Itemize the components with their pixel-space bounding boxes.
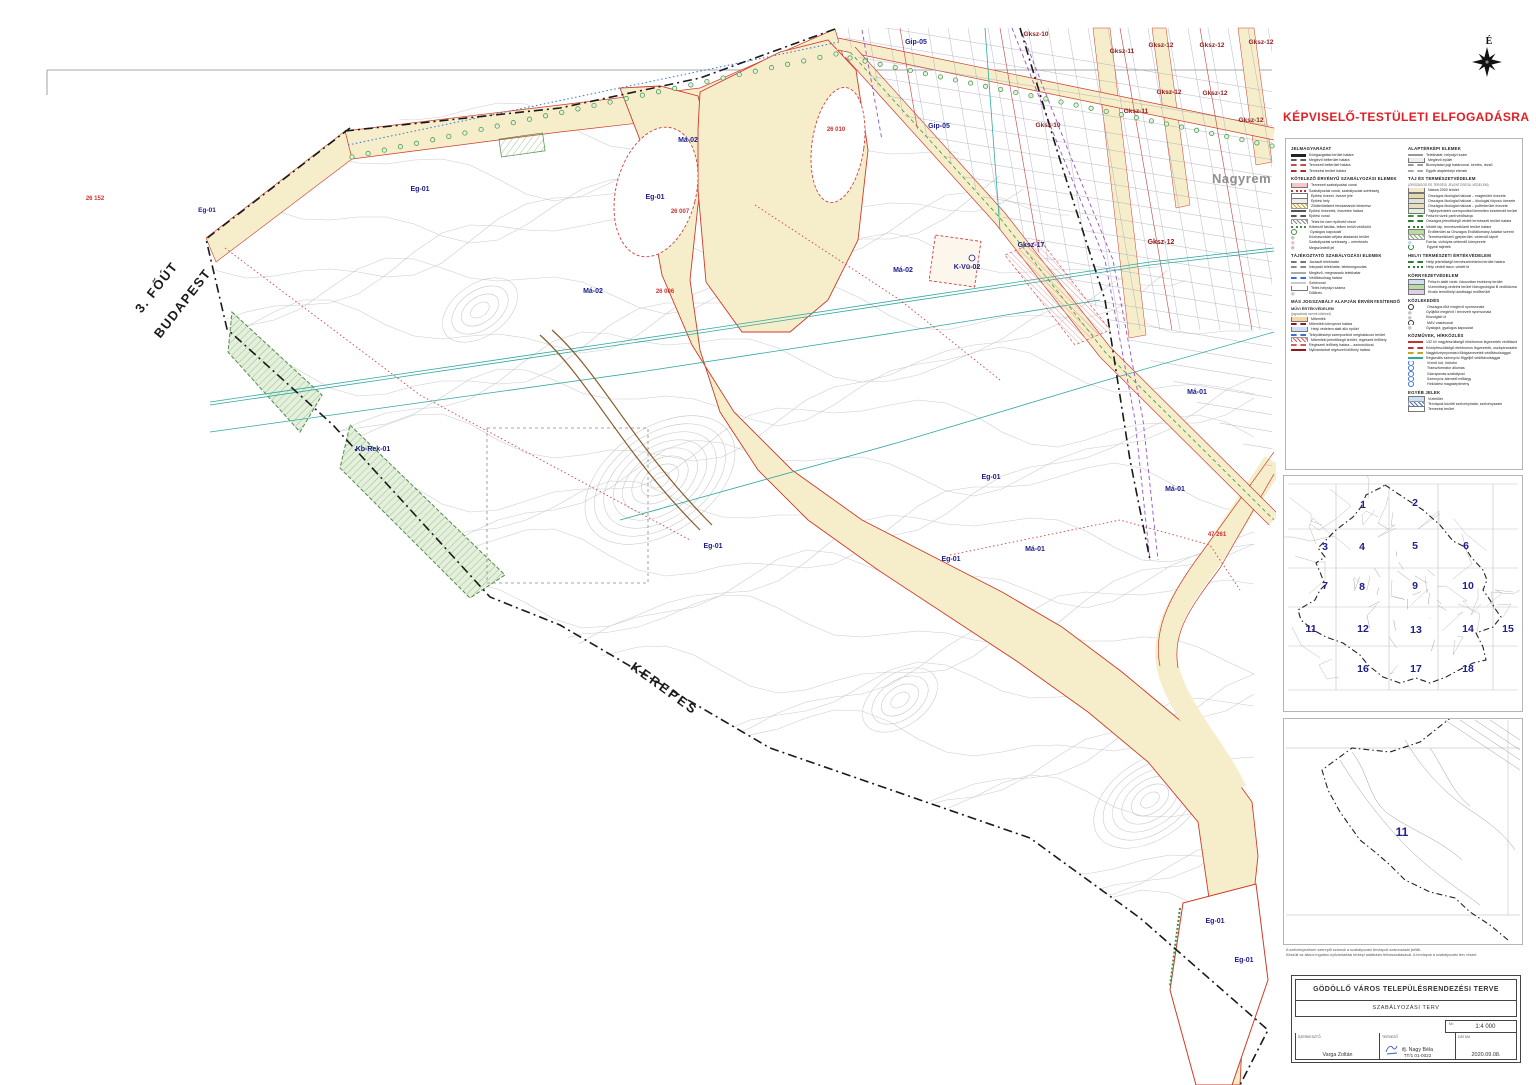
legend-item-label: Műemlék xyxy=(1311,317,1326,321)
legend-swatch-icon: ◎ xyxy=(1408,325,1423,330)
designer-cell: TERVEZŐ ifj. Nagy Béla TT/1 01-0022 xyxy=(1380,1033,1456,1059)
detail-sheet-number: 11 xyxy=(1396,825,1409,839)
legend-item: Helyi védett fasor, védett fa xyxy=(1408,265,1517,270)
legend-item-label: Nagyközépnyomású földgázvezeték védőtávo… xyxy=(1426,351,1511,355)
legend-item-label: Védőtávolság határa xyxy=(1309,276,1342,280)
keymap-overview: 123456789101112131415161718 xyxy=(1284,476,1522,711)
legend-item-label: Regionális szennyvíz főgyűjtő védőtávols… xyxy=(1426,356,1500,360)
legend-item-label: Vízfelület xyxy=(1428,397,1443,401)
legend-swatch-icon xyxy=(1291,334,1306,336)
zone-label: Gksz-11 xyxy=(1124,108,1149,115)
keymap-sheet-number: 14 xyxy=(1462,623,1474,635)
legend-item-label: Tervezett belterület határa xyxy=(1309,163,1351,167)
legend-swatch-icon xyxy=(1291,323,1306,325)
legend-swatch-icon xyxy=(1291,159,1306,161)
legend-item-label: MÁV vasútvonal xyxy=(1427,321,1453,325)
zone-label: Gksz-12 xyxy=(1249,39,1274,46)
keymap-sheet-number: 16 xyxy=(1357,663,1369,675)
approval-title: KÉPVISELŐ-TESTÜLETI ELFOGADÁSRA xyxy=(1283,110,1523,124)
keymap-sheet-number: 15 xyxy=(1502,623,1514,635)
legend-swatch-icon xyxy=(1408,357,1423,359)
keymap-sheet-number: 1 xyxy=(1360,499,1366,511)
legend-item-label: Építési övezetek, övezetek határa xyxy=(1309,209,1363,213)
legend-column-left: JELMAGYARÁZATKözigazgatási terület határ… xyxy=(1291,143,1400,465)
legend-item-label: Vízmű kút, hidrofor xyxy=(1427,361,1457,365)
legend-item-label: Szabályozási szélesség – méretezés xyxy=(1309,240,1368,244)
zone-label: Gksz-10 xyxy=(1036,122,1061,129)
legend-section-header: KÖZMŰVEK, HÍRKÖZLÉS xyxy=(1408,333,1517,338)
legend-swatch-icon xyxy=(1408,245,1414,250)
legend-item-label: Műemléki jelentőségű terület, régészeti … xyxy=(1311,338,1387,342)
editor-label: SZERKESZTŐ xyxy=(1298,1034,1321,1039)
special-sites xyxy=(929,235,1110,345)
legend-section: TÁJ ÉS TERMÉSZETVÉDELEM(ORSZÁGOS ÉS TÉRS… xyxy=(1408,176,1517,250)
legend-item-label: Építési övezet, övezet jele xyxy=(1311,194,1353,198)
stamp-icon xyxy=(1384,1042,1400,1056)
legend-section-header: ALAPTÉRKÉPI ELEMEK xyxy=(1408,146,1517,151)
legend-swatch-icon: ◎ xyxy=(1291,245,1306,250)
zone-label: Gksz-12 xyxy=(1157,89,1182,96)
legend-item: Tervezési terület xyxy=(1408,406,1517,411)
legend-item-label: Gyűjtőút meglévő / tervezett nyomvonala xyxy=(1426,310,1491,314)
legend-item-label: Helyi védelem alatt álló épület xyxy=(1311,327,1359,331)
legend-swatch-icon xyxy=(1408,347,1423,349)
date-cell: DÁTUM 2020.09.08. xyxy=(1456,1033,1516,1059)
legend-swatch-icon xyxy=(1291,164,1306,166)
keymap-sheet-number: 8 xyxy=(1359,581,1365,593)
zone-label: Gksz-10 xyxy=(1024,31,1049,38)
place-label: Nagyrem xyxy=(1212,171,1271,186)
north-arrow: É xyxy=(1472,36,1506,77)
legend-section: MÁS JOGSZABÁLY ALAPJÁN ÉRVÉNYESÍTENDŐ KÖ… xyxy=(1291,299,1400,353)
zone-label: Gksz-12 xyxy=(1200,42,1225,49)
legend-item-label: Irányadó telekhatár, telekmegosztás xyxy=(1309,265,1367,269)
legend-item-label: Régészeti lelőhely határa – azonosítóval xyxy=(1309,343,1374,347)
legend-item-label: Tervlapok közötti szelvényhatár, szelvén… xyxy=(1428,402,1502,406)
legend-section-header: KÖTELEZŐ ÉRVÉNYŰ SZABÁLYOZÁSI ELEMEK xyxy=(1291,176,1400,181)
legend-section: EGYÉB JELEKVízfelületTervlapok közötti s… xyxy=(1408,390,1517,412)
legend-panel: JELMAGYARÁZATKözigazgatási terület határ… xyxy=(1285,138,1523,470)
legend-item-label: Erdőterület az Országos Erdőállomány Ada… xyxy=(1428,230,1514,234)
legend-swatch-icon xyxy=(1408,220,1423,222)
legend-item-label: Meglévő, megmaradó telekhatár xyxy=(1309,271,1361,275)
legend-item-label: Forrás, vízfolyás védendő környezete xyxy=(1426,240,1486,244)
legend-swatch-icon xyxy=(1291,272,1306,274)
legend-item-label: Szintvonal xyxy=(1309,281,1326,285)
legend-swatch-icon: ◎ xyxy=(1291,291,1306,296)
zone-label: Gip-05 xyxy=(905,39,927,46)
zone-label: Gksz-11 xyxy=(1110,48,1135,55)
legend-item-label: Országos ökológiai hálózat – pufferterül… xyxy=(1428,204,1508,208)
legend-section-header: TÁJÉKOZTATÓ SZABÁLYOZÁSI ELEMEK xyxy=(1291,253,1400,258)
zone-label: Gksz-17 xyxy=(1018,242,1045,249)
scale-value: 1:4 000 xyxy=(1458,1024,1513,1030)
zone-label: Eg-01 xyxy=(1234,957,1253,964)
legend-section: HELYI TERMÉSZETI ÉRTÉKVÉDELEMHelyi jelen… xyxy=(1408,253,1517,270)
legend-swatch-icon xyxy=(1408,215,1423,217)
legend-section-header: JELMAGYARÁZAT xyxy=(1291,146,1400,151)
legend-item-label: Közhasználat céljára átadandó terület xyxy=(1309,235,1369,239)
legend-section-header: KÖZLEKEDÉS xyxy=(1408,298,1517,303)
date-value: 2020.09.08. xyxy=(1471,1052,1500,1058)
legend-item-label: Egyéb alaptérképi elemek xyxy=(1426,169,1467,173)
legend-swatch-icon xyxy=(1408,164,1423,166)
zone-label: Kb-Rek-01 xyxy=(356,446,391,453)
zone-label: Eg-01 xyxy=(981,474,1000,481)
legend-swatch-icon xyxy=(1408,261,1423,263)
date-label: DÁTUM xyxy=(1458,1034,1470,1039)
road-label: KEREPES xyxy=(628,659,701,718)
legend-swatch-icon xyxy=(1408,154,1423,156)
legend-item-label: Meglévő épület xyxy=(1428,158,1452,162)
zone-label: Eg-01 xyxy=(941,556,960,563)
legend-column-right: ALAPTÉRKÉPI ELEMEKTelekhatár, helyrajzi … xyxy=(1408,143,1517,465)
legend-swatch-icon xyxy=(1291,261,1306,263)
keymap-sheet-number: 17 xyxy=(1410,663,1422,675)
legend-section: JELMAGYARÁZATKözigazgatási terület határ… xyxy=(1291,146,1400,173)
legend-swatch-icon xyxy=(1291,170,1306,172)
sheet-title: SZABÁLYOZÁSI TERV xyxy=(1295,1001,1517,1017)
legend-section-note: (jogszabály szerint kötelező) xyxy=(1291,312,1400,316)
main-map: 26 152Eg-01Eg-01Má-02Eg-0126 00726 010Gi… xyxy=(0,0,1276,1085)
keymap-sheet-number: 9 xyxy=(1412,580,1418,592)
parcel-number-label: 26 010 xyxy=(827,127,846,133)
legend-swatch-icon xyxy=(1408,209,1425,214)
legend-section-note: (ORSZÁGOS ÉS TÉRSÉGI JELENTŐSÉGŰ VÉDELEM… xyxy=(1408,183,1517,187)
zone-label: K-Vü-02 xyxy=(954,264,981,271)
title-block: GÖDÖLLŐ VÁROS TELEPÜLÉSRENDEZÉSI TERVE S… xyxy=(1291,975,1521,1063)
legend-swatch-icon xyxy=(1408,381,1414,386)
legend-item: ◎Dűlőnév xyxy=(1291,291,1400,296)
legend-item-label: Telek helyrajzi száma xyxy=(1311,286,1345,290)
legend-item-label: Országos ökológiai hálózat – ökológiai f… xyxy=(1428,199,1515,203)
zone-label: Gksz-12 xyxy=(1148,239,1175,246)
editor-name: Varga Zoltán xyxy=(1323,1052,1353,1058)
parcel-number-label: 47 261 xyxy=(1208,532,1227,538)
legend-item-label: Tervezési terület xyxy=(1428,407,1454,411)
legend-item-label: Nyilvántartott régészeti lelőhely határa xyxy=(1309,348,1370,352)
legend-swatch-icon xyxy=(1408,170,1423,172)
legend-item: Kiváló termőhelyi adottságú erdőterület xyxy=(1408,290,1517,295)
legend-item-label: Műemléki környezet határa xyxy=(1309,322,1352,326)
keymap-sheet-number: 10 xyxy=(1462,580,1474,592)
legend-item-label: Országos ökológiai hálózat – magterület … xyxy=(1428,194,1506,198)
detail-boundary-outline xyxy=(1322,719,1508,940)
legend-item-label: Dűlőnév xyxy=(1309,291,1322,295)
legend-item: ◎Gyalogút, gyalogos kapcsolat xyxy=(1408,325,1517,330)
legend-item-label: Építési vonal xyxy=(1309,214,1330,218)
legend-item-label: Tervezett szabályozási vonal xyxy=(1311,183,1357,187)
legend-swatch-icon xyxy=(1291,190,1306,192)
parcel-number-label: 26 007 xyxy=(671,209,690,215)
zone-label: Má-02 xyxy=(893,267,913,274)
plan-sheet: 26 152Eg-01Eg-01Má-02Eg-0126 00726 010Gi… xyxy=(0,0,1536,1085)
keymap-sheet-number: 4 xyxy=(1359,541,1365,553)
legend-swatch-icon xyxy=(1408,406,1425,411)
scale-cell: M= 1:4 000 xyxy=(1445,1020,1517,1033)
zone-label: Má-02 xyxy=(678,137,698,144)
keymap-sheet-numbers: 123456789101112131415161718 xyxy=(1305,497,1514,675)
zone-label: Má-02 xyxy=(583,288,603,295)
parcel-number-label: 26 152 xyxy=(86,196,105,202)
legend-item-label: Vízminőség-védelmi terület hidrogeológia… xyxy=(1428,285,1517,289)
parcel-number-label: 26 006 xyxy=(656,289,675,295)
keymap-detail-panel: 11 xyxy=(1283,718,1523,945)
legend-item-label: Megszüntető jel xyxy=(1309,246,1334,250)
zone-label: Gksz-12 xyxy=(1203,90,1228,97)
keymap-sheet-number: 11 xyxy=(1305,623,1316,635)
legend-item: Tervezési terület határa xyxy=(1291,168,1400,173)
keymap-overview-panel: 123456789101112131415161718 xyxy=(1283,475,1523,712)
zone-label: Gksz-12 xyxy=(1149,42,1174,49)
legend-item-label: Felszíni vizek parti védősávja xyxy=(1426,214,1473,218)
legend-item-label: Helyi jelentőségű természetvédelmi terül… xyxy=(1426,260,1505,264)
legend-swatch-icon xyxy=(1291,183,1308,188)
legend-section-header: EGYÉB JELEK xyxy=(1408,390,1517,395)
legend-item-label: Bizonytalan jogi határvonal, kerítés, ré… xyxy=(1426,163,1493,167)
legend-item-label: Építési hely xyxy=(1311,199,1330,203)
legend-item: Egyedi tájérték xyxy=(1408,245,1517,250)
legend-section-header: HELYI TERMÉSZETI ÉRTÉKVÉDELEM xyxy=(1408,253,1517,258)
keymap-sheet-number: 18 xyxy=(1462,663,1474,675)
zone-bands xyxy=(206,28,1276,1085)
legend-swatch-icon xyxy=(1291,277,1306,279)
legend-swatch-icon xyxy=(1291,282,1306,284)
zone-label: Gip-05 xyxy=(928,123,950,130)
legend-swatch-icon xyxy=(1408,158,1425,163)
zone-label: Eg-01 xyxy=(410,186,429,193)
legend-section: KÖZMŰVEK, HÍRKÖZLÉS132 kV nagyfeszültség… xyxy=(1408,333,1517,386)
compass-rose-icon xyxy=(1472,47,1502,77)
legend-item: Egyéb alaptérképi elemek xyxy=(1408,168,1517,173)
legend-item-label: Meglévő belterület határa xyxy=(1309,158,1350,162)
zone-label: Eg-01 xyxy=(645,194,664,201)
zone-label: Eg-01 xyxy=(1205,918,1224,925)
zone-label: Má-01 xyxy=(1025,546,1045,553)
legend-item-label: Hírközlési magasépítmény xyxy=(1427,382,1469,386)
zone-label: Eg-01 xyxy=(198,207,216,214)
legend-item-label: Természetközeli gyepterület, védendő láp… xyxy=(1428,235,1498,239)
legend-swatch-icon xyxy=(1408,226,1423,228)
legend-item-label: Gyalogos kapcsolat xyxy=(1310,230,1341,234)
legend-item: Műemléki jelentőségű terület, régészeti … xyxy=(1291,337,1400,342)
keymap-sheet-number: 7 xyxy=(1322,580,1328,592)
legend-item: ◎Megszüntető jel xyxy=(1291,245,1400,250)
legend-section-header: TÁJ ÉS TERMÉSZETVÉDELEM xyxy=(1408,176,1517,181)
legend-item-label: Középfeszültségű elektromos légvezeték, … xyxy=(1426,346,1517,350)
legend-section-subheader: MŰVI ÉRTÉKVÉDELEM xyxy=(1291,306,1400,311)
legend-item-label: Közigazgatási terület határa xyxy=(1309,153,1354,157)
keymap-sheet-number: 6 xyxy=(1463,540,1469,552)
legend-section: KÖZLEKEDÉSOrszágos főút meglévő nyomvona… xyxy=(1408,298,1517,330)
legend-item-label: Transzformátor állomás xyxy=(1427,366,1465,370)
legend-swatch-icon xyxy=(1408,290,1425,295)
legend-item: Nyilvántartott régészeti lelőhely határa xyxy=(1291,348,1400,353)
zone-label: Má-01 xyxy=(1165,486,1185,493)
legend-item-label: Országos főút meglévő nyomvonala xyxy=(1427,305,1484,309)
keymap-detail: 11 xyxy=(1284,719,1522,944)
legend-swatch-icon xyxy=(1291,317,1308,322)
legend-section: KÖRNYEZETVÉDELEMFelszín alatti vizek: fo… xyxy=(1408,273,1517,295)
legend-swatch-icon xyxy=(1291,266,1306,268)
legend-item-label: 132 kV nagyfeszültségű elektromos légvez… xyxy=(1426,340,1517,344)
legend-section-header: KÖRNYEZETVÉDELEM xyxy=(1408,273,1517,278)
legend-item-label: Szabályozási vonal, szabályozási széless… xyxy=(1309,189,1379,193)
designer-registration: TT/1 01-0022 xyxy=(1404,1053,1432,1058)
legend-item-label: Szennyvíz átemelő műtárgy xyxy=(1427,377,1471,381)
legend-swatch-icon xyxy=(1291,215,1306,217)
keymap-sheet-number: 13 xyxy=(1410,624,1422,636)
legend-item-label: Tájképvédelmi szempontból kiemelten keze… xyxy=(1428,209,1517,213)
legend-swatch-icon xyxy=(1291,327,1308,332)
note-line: Készült az állami ingatlan-nyilvántartás… xyxy=(1286,953,1522,958)
legend-item-label: Helyi védett fasor, védett fa xyxy=(1426,265,1469,269)
zone-label: Gksz-12 xyxy=(1239,117,1264,124)
legend-item-label: Natura 2000 terület xyxy=(1428,188,1459,192)
keymap-sheet-number: 3 xyxy=(1322,541,1328,553)
legend-item-label: Kötelező fásítás, telken belüli védőzöld xyxy=(1309,225,1371,229)
legend-item-label: Védett láp, természetközeli terület hatá… xyxy=(1426,225,1491,229)
designer-label: TERVEZŐ xyxy=(1382,1034,1398,1039)
project-title: GÖDÖLLŐ VÁROS TELEPÜLÉSRENDEZÉSI TERVE xyxy=(1295,979,1517,1001)
legend-item-label: Egyedi tájérték xyxy=(1427,245,1451,249)
legend-swatch-icon xyxy=(1291,154,1306,157)
legend-item-label: Tervezési terület határa xyxy=(1309,169,1346,173)
legend-swatch-icon xyxy=(1291,344,1306,346)
keymap-sheet-number: 5 xyxy=(1412,540,1418,552)
legend-swatch-icon xyxy=(1291,204,1308,209)
keymap-sheet-number: 12 xyxy=(1357,623,1369,635)
bottom-right-zone xyxy=(1170,884,1268,1085)
legend-swatch-icon xyxy=(1408,352,1423,354)
keymap-sheet-number: 2 xyxy=(1412,497,1418,509)
legend-item-label: Gáznyomás-szabályozó xyxy=(1427,372,1465,376)
scale-label: M= xyxy=(1449,1021,1454,1026)
legend-swatch-icon xyxy=(1408,266,1423,268)
legend-item-label: Felszín alatti vizek: fokozottan érzéken… xyxy=(1428,280,1503,284)
legend-item-label: Zöldfelületként fenntartandó telekrész xyxy=(1311,204,1371,208)
legend-item: Tájképvédelmi szempontból kiemelten keze… xyxy=(1408,209,1517,214)
zone-label: Eg-01 xyxy=(703,543,722,550)
legend-swatch-icon xyxy=(1291,349,1306,351)
legend-section-header: MÁS JOGSZABÁLY ALAPJÁN ÉRVÉNYESÍTENDŐ KÖ… xyxy=(1291,299,1400,304)
legend-item: Hírközlési magasépítmény xyxy=(1408,381,1517,386)
editor-cell: SZERKESZTŐ Varga Zoltán xyxy=(1296,1033,1380,1059)
legend-item-label: Telekhatár, helyrajzi szám xyxy=(1426,153,1467,157)
legend-section: TÁJÉKOZTATÓ SZABÁLYOZÁSI ELEMEKJavasolt … xyxy=(1291,253,1400,296)
legend-item-label: Javasolt telekhatár xyxy=(1309,260,1339,264)
sheet-notes: A szelvényezésen szereplő számok a szabá… xyxy=(1286,948,1522,958)
north-label: É xyxy=(1472,36,1506,47)
legend-section: KÖTELEZŐ ÉRVÉNYŰ SZABÁLYOZÁSI ELEMEKTerv… xyxy=(1291,176,1400,250)
legend-item-label: Kiváló termőhelyi adottságú erdőterület xyxy=(1428,290,1490,294)
legend-section: ALAPTÉRKÉPI ELEMEKTelekhatár, helyrajzi … xyxy=(1408,146,1517,173)
legend-item-label: Kiszolgáló út xyxy=(1426,315,1446,319)
legend-item-label: Gyalogút, gyalogos kapcsolat xyxy=(1426,326,1473,330)
legend-item-label: Településképi szempontból meghatározó te… xyxy=(1309,333,1385,337)
zone-label: Má-01 xyxy=(1187,389,1207,396)
legend-item-label: Telek be nem építhető része xyxy=(1311,220,1356,224)
legend-swatch-icon xyxy=(1291,226,1306,228)
legend-swatch-icon xyxy=(1291,337,1308,342)
legend-swatch-icon xyxy=(1291,210,1306,212)
legend-swatch-icon xyxy=(1408,341,1423,343)
legend-item-label: Országos jelentőségű védett természeti t… xyxy=(1426,219,1511,223)
legend-swatch-icon xyxy=(1291,219,1308,224)
keymap-street-texture xyxy=(1284,476,1520,679)
